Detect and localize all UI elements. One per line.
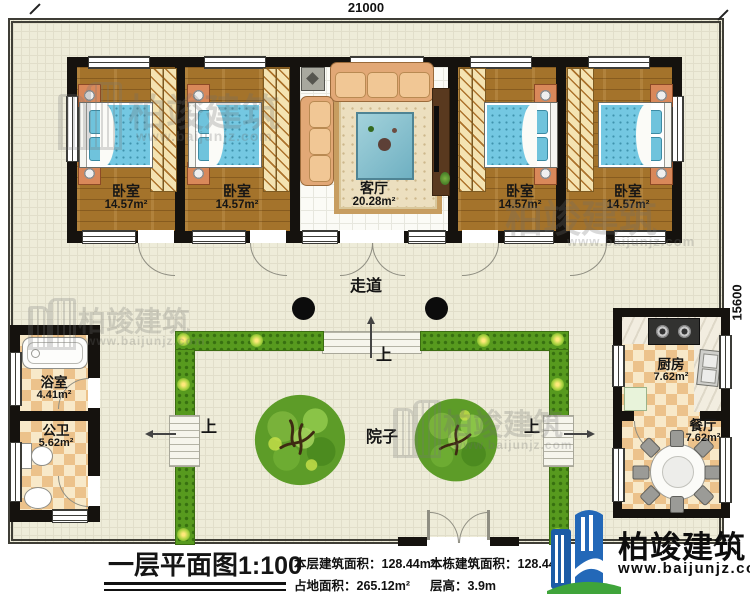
door-opening: [88, 476, 100, 506]
window: [612, 345, 625, 387]
window: [82, 230, 136, 244]
window: [52, 509, 88, 523]
structural-column: [425, 297, 448, 320]
info-label: 本栋建筑面积：: [430, 557, 518, 571]
room-label: 卧室: [96, 184, 156, 199]
steps: [169, 415, 200, 467]
flower-icon: [551, 333, 564, 346]
room-label: 客厅: [346, 181, 402, 196]
window: [302, 230, 338, 244]
watermark-building-icon: [28, 306, 50, 350]
window: [9, 442, 22, 502]
corridor-label: 走道: [334, 279, 398, 296]
info-floor-height: 层高：3.9m: [430, 575, 496, 594]
watermark: 柏竣建筑 www.baijunjz.com: [28, 298, 258, 360]
stove: [648, 318, 700, 345]
door-opening: [138, 230, 174, 243]
window: [588, 56, 650, 69]
info-value: 265.12m²: [357, 579, 411, 593]
hedge: [420, 331, 569, 351]
window: [204, 56, 266, 69]
flower-icon: [477, 334, 490, 347]
up-label: 上: [199, 420, 219, 437]
bed: [484, 102, 558, 168]
window: [408, 230, 446, 244]
tv: [434, 106, 439, 172]
partition-wall: [622, 411, 634, 421]
title-underline: [104, 582, 286, 585]
room-area: 14.57m²: [207, 199, 267, 211]
flower-icon: [177, 378, 190, 391]
chair: [633, 466, 650, 480]
flower-icon: [177, 528, 190, 541]
watermark-building-icon: [413, 400, 441, 458]
watermark-building-icon: [86, 82, 122, 150]
brand-url: www.baijunjz.com: [618, 560, 750, 577]
bed: [598, 102, 672, 168]
info-label: 本层建筑面积：: [294, 557, 382, 571]
window: [9, 352, 22, 406]
watermark-building-icon: [48, 298, 76, 350]
room-area: 7.62m²: [678, 433, 728, 445]
plan-title: 一层平面图: [108, 552, 248, 579]
room-area: 14.57m²: [96, 199, 156, 211]
flower-icon: [551, 378, 564, 391]
up-label: 上: [374, 348, 394, 365]
watermark: 柏竣建筑 www.baijunjz.com: [58, 80, 348, 160]
info-value: 128.44m²: [382, 557, 436, 571]
title-underline: [104, 589, 286, 591]
watermark: 柏竣建筑 www.baijunjz.com: [393, 398, 618, 462]
up-arrow: [152, 433, 176, 435]
gate-jamb: [398, 537, 427, 546]
wardrobe: [459, 68, 486, 192]
door-opening: [340, 230, 404, 243]
room-area: 5.62m²: [32, 438, 80, 450]
tree-icon: [252, 392, 348, 488]
washbasin: [24, 487, 52, 509]
gate-jamb: [490, 537, 519, 546]
room-area: 4.41m²: [30, 390, 78, 402]
watermark-building-icon: [58, 94, 86, 150]
window: [88, 56, 150, 69]
chair: [670, 496, 684, 513]
room-area: 7.62m²: [645, 372, 697, 384]
refrigerator: [624, 387, 647, 411]
kitchen-sink: [696, 349, 722, 387]
door-opening: [88, 378, 100, 408]
window: [192, 230, 246, 244]
steps: [322, 331, 422, 354]
dimension-top: 21000: [330, 0, 402, 15]
window: [719, 335, 732, 389]
window: [719, 437, 732, 503]
up-arrow: [370, 324, 372, 358]
plant-icon: [440, 172, 450, 185]
info-label: 占地面积：: [294, 579, 357, 593]
door-opening: [462, 230, 498, 243]
building-logo-icon: [545, 503, 623, 594]
dimension-tick: [29, 3, 40, 14]
floor-plan: 21000 15600: [0, 0, 750, 594]
door-opening: [250, 230, 286, 243]
info-site-area: 占地面积：265.12m²: [294, 575, 410, 594]
up-arrow-head: [367, 316, 375, 324]
room-label: 卧室: [207, 184, 267, 199]
info-floor-area: 本层建筑面积：128.44m²: [294, 553, 435, 572]
watermark-building-icon: [393, 408, 415, 458]
wardrobe: [567, 68, 594, 192]
room-area: 20.28m²: [346, 196, 402, 208]
info-value: 3.9m: [468, 579, 497, 593]
dimension-right: 15600: [730, 278, 745, 328]
coffee-table: [356, 112, 414, 180]
info-label: 层高：: [430, 579, 468, 593]
up-arrow-head: [145, 430, 153, 438]
watermark: 柏竣建筑 www.baijunjz.com: [505, 188, 750, 252]
structural-column: [292, 297, 315, 320]
